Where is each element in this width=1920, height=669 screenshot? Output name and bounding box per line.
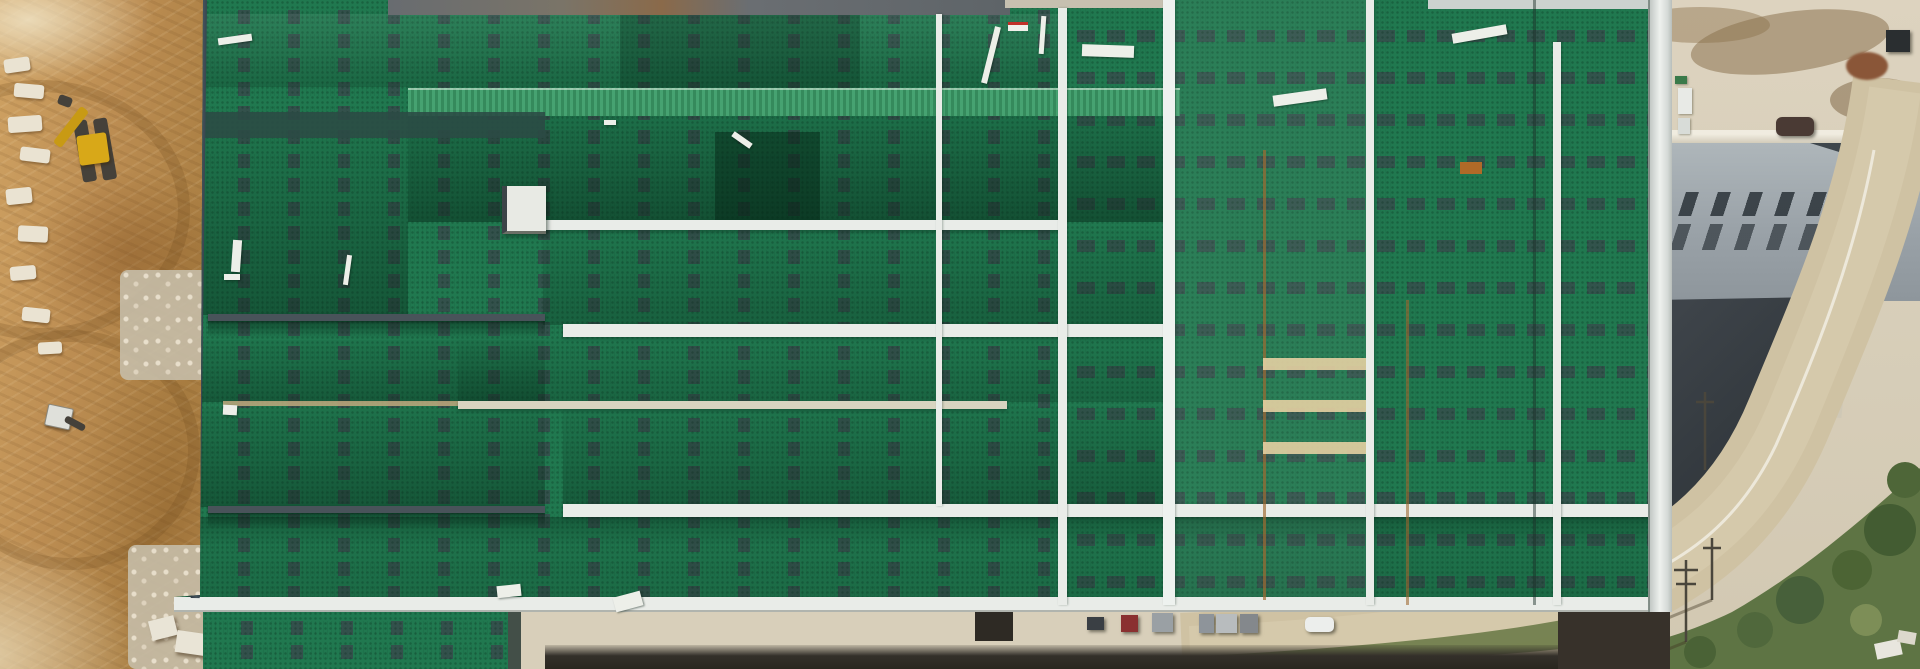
debris-pile (1846, 52, 1888, 80)
aerial-photo-canvas (0, 0, 1920, 669)
gray-truck (1240, 614, 1258, 633)
dark-van (1087, 617, 1104, 630)
dark-suv (1776, 117, 1814, 136)
dark-bin (1886, 30, 1910, 52)
white-car (1305, 617, 1334, 632)
red-truck (1121, 615, 1138, 632)
gray-truck (1152, 613, 1173, 632)
gray-truck (1199, 614, 1214, 633)
vehicles-layer (0, 0, 1920, 669)
light-truck (1216, 614, 1237, 633)
